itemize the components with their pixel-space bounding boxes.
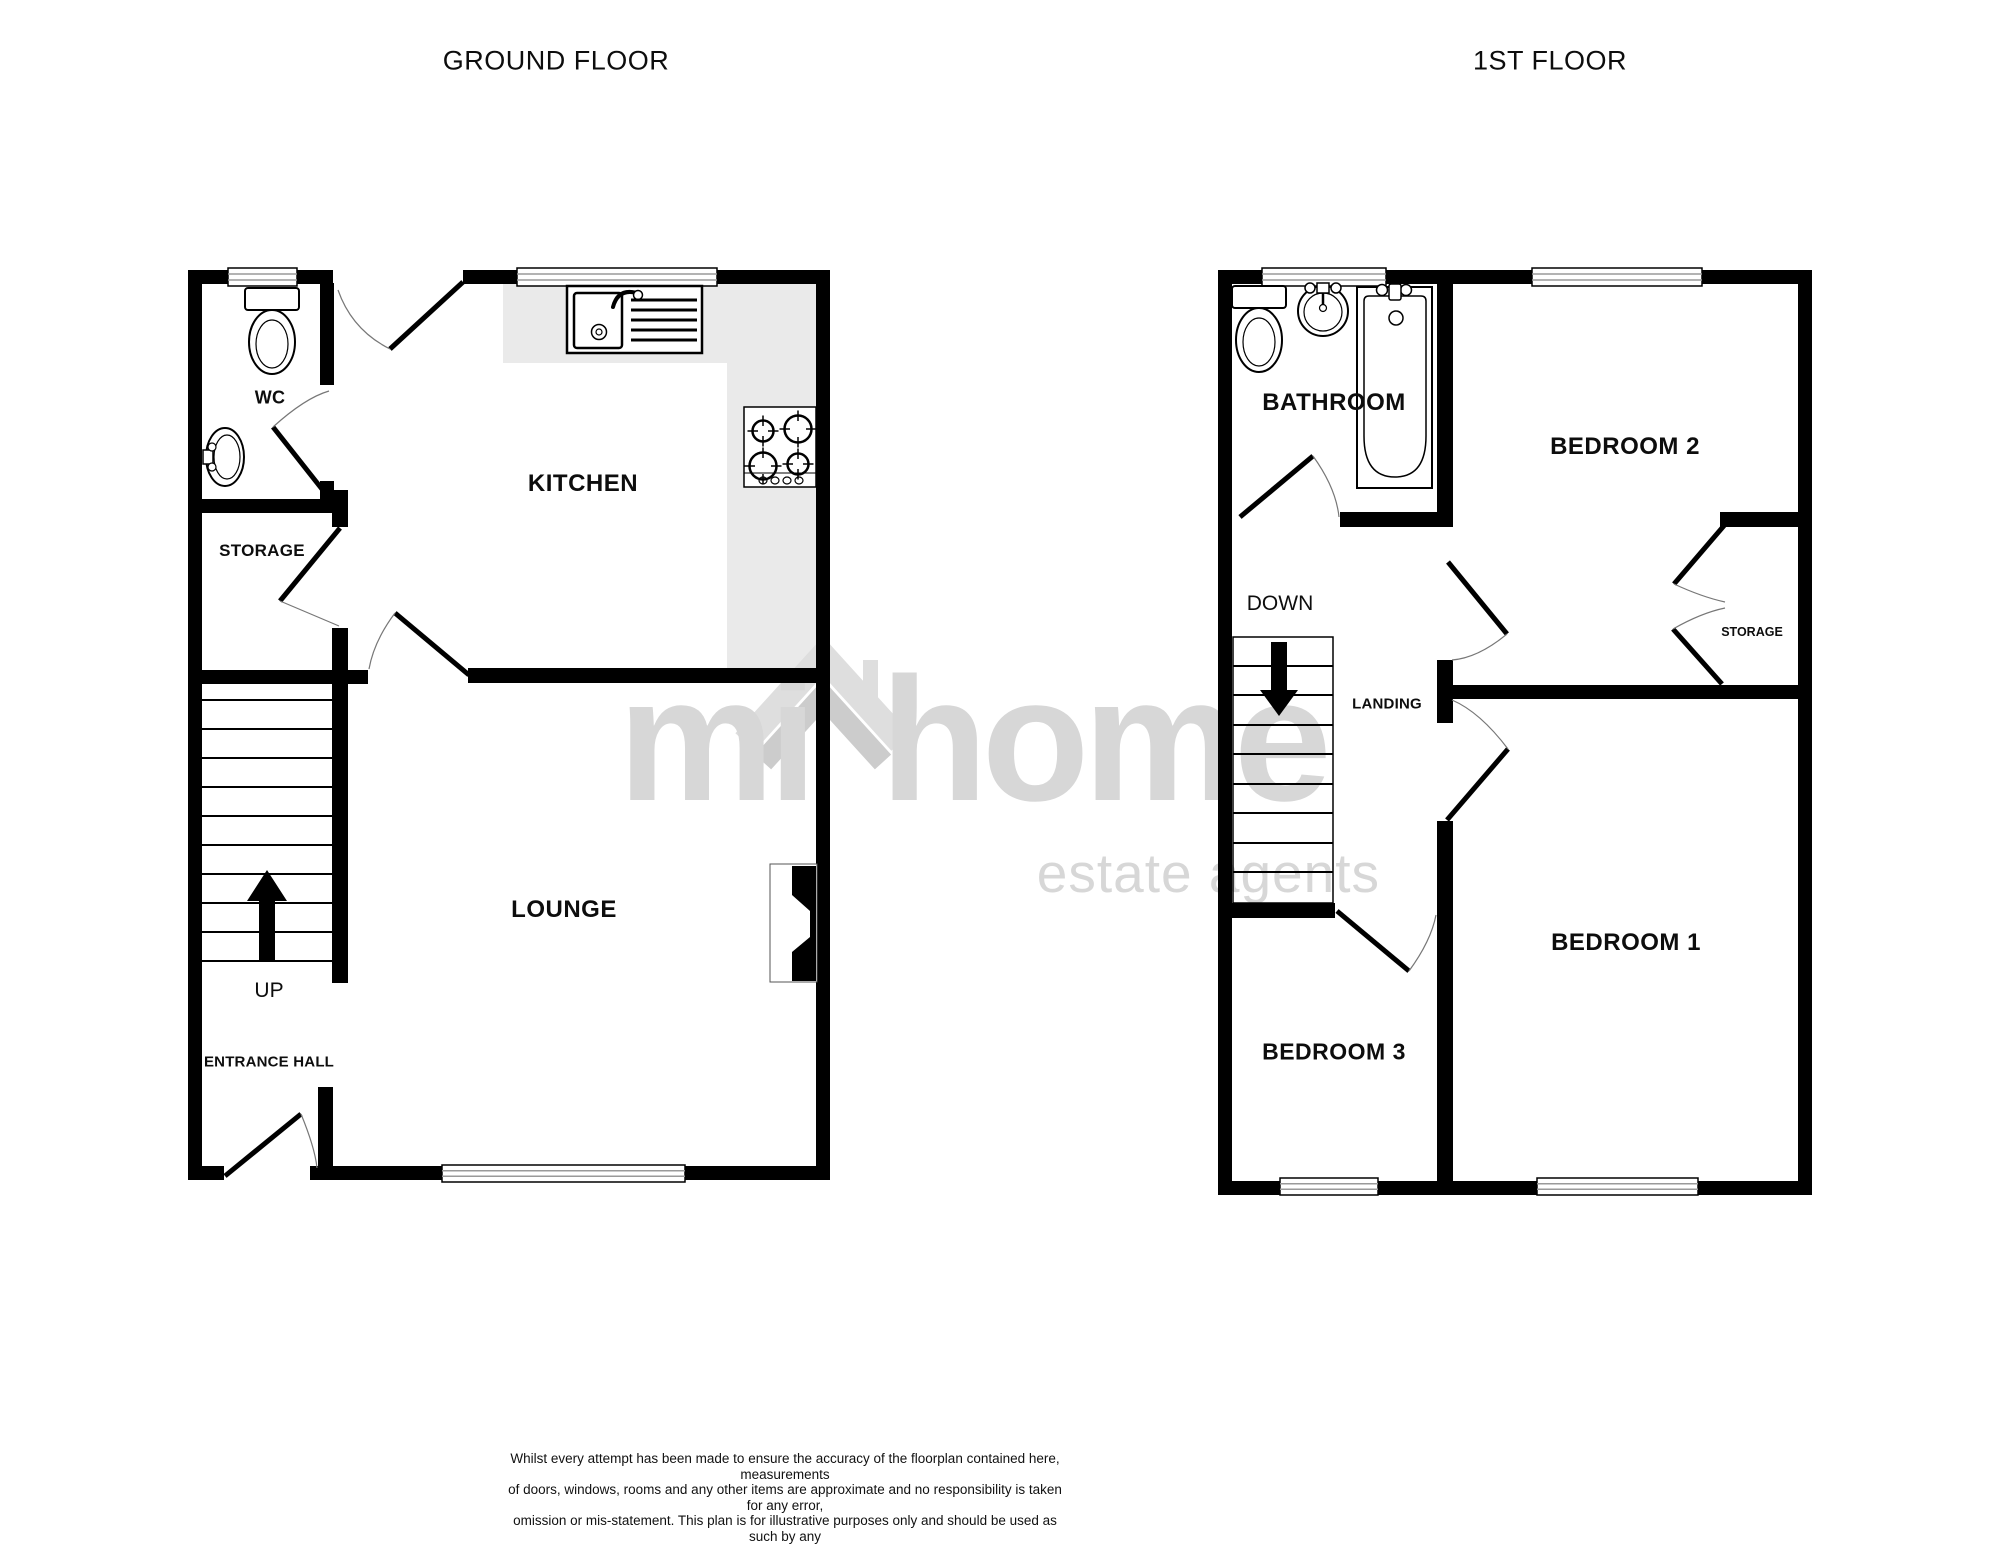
label-up: UP xyxy=(254,979,283,1003)
bedroom1-door xyxy=(1447,700,1508,820)
wc-toilet-icon xyxy=(245,288,299,374)
storage-double-doors xyxy=(1673,521,1728,684)
bathtub-icon xyxy=(1357,284,1432,488)
bathroom-door xyxy=(1240,456,1339,517)
kitchen-sink-icon xyxy=(567,286,702,353)
first-floor-doors xyxy=(1240,456,1728,971)
label-down: DOWN xyxy=(1247,592,1314,616)
bedroom3-door xyxy=(1337,911,1436,971)
room-label-storage-ground: STORAGE xyxy=(219,541,305,561)
hob-icon xyxy=(744,407,817,487)
plan-layer xyxy=(0,0,2000,1545)
disclaimer-line: Whilst every attempt has been made to en… xyxy=(505,1451,1065,1482)
bedroom2-window xyxy=(1532,268,1702,286)
room-label-bedroom2: BEDROOM 2 xyxy=(1550,433,1700,461)
lounge-door xyxy=(369,613,469,675)
disclaimer: Whilst every attempt has been made to en… xyxy=(505,1451,1065,1545)
bedroom3-window xyxy=(1280,1178,1378,1195)
bathroom-basin-icon xyxy=(1298,283,1348,336)
room-label-bedroom3: BEDROOM 3 xyxy=(1262,1039,1406,1066)
bedroom1-window xyxy=(1537,1178,1698,1195)
stairs-down xyxy=(1233,637,1333,903)
fireplace-icon xyxy=(770,864,817,982)
wc-basin-icon xyxy=(203,428,244,486)
bedroom2-door xyxy=(1448,562,1507,660)
room-label-bathroom: BATHROOM xyxy=(1262,389,1406,417)
room-label-entrance-hall: ENTRANCE HALL xyxy=(204,1054,334,1071)
down-arrow-icon xyxy=(1260,642,1298,716)
stairs-up xyxy=(202,700,332,961)
room-label-bedroom1: BEDROOM 1 xyxy=(1551,929,1701,957)
bathroom-toilet-icon xyxy=(1232,286,1286,372)
disclaimer-line: omission or mis-statement. This plan is … xyxy=(505,1513,1065,1544)
room-label-lounge: LOUNGE xyxy=(511,896,617,924)
wc-window xyxy=(228,268,297,286)
up-arrow-icon xyxy=(247,870,287,960)
room-label-wc: WC xyxy=(255,388,286,409)
first-floor-title: 1ST FLOOR xyxy=(1473,46,1627,77)
floorplan-page: mi home estate agents xyxy=(0,0,2000,1545)
lounge-window xyxy=(442,1165,685,1182)
room-label-storage-first: STORAGE xyxy=(1721,625,1783,639)
front-door xyxy=(225,1114,317,1176)
room-label-landing: LANDING xyxy=(1352,696,1422,713)
disclaimer-line: of doors, windows, rooms and any other i… xyxy=(505,1482,1065,1513)
kitchen-window xyxy=(517,268,717,286)
room-label-kitchen: KITCHEN xyxy=(528,470,638,498)
ground-floor-title: GROUND FLOOR xyxy=(443,46,670,77)
back-door xyxy=(338,282,463,349)
